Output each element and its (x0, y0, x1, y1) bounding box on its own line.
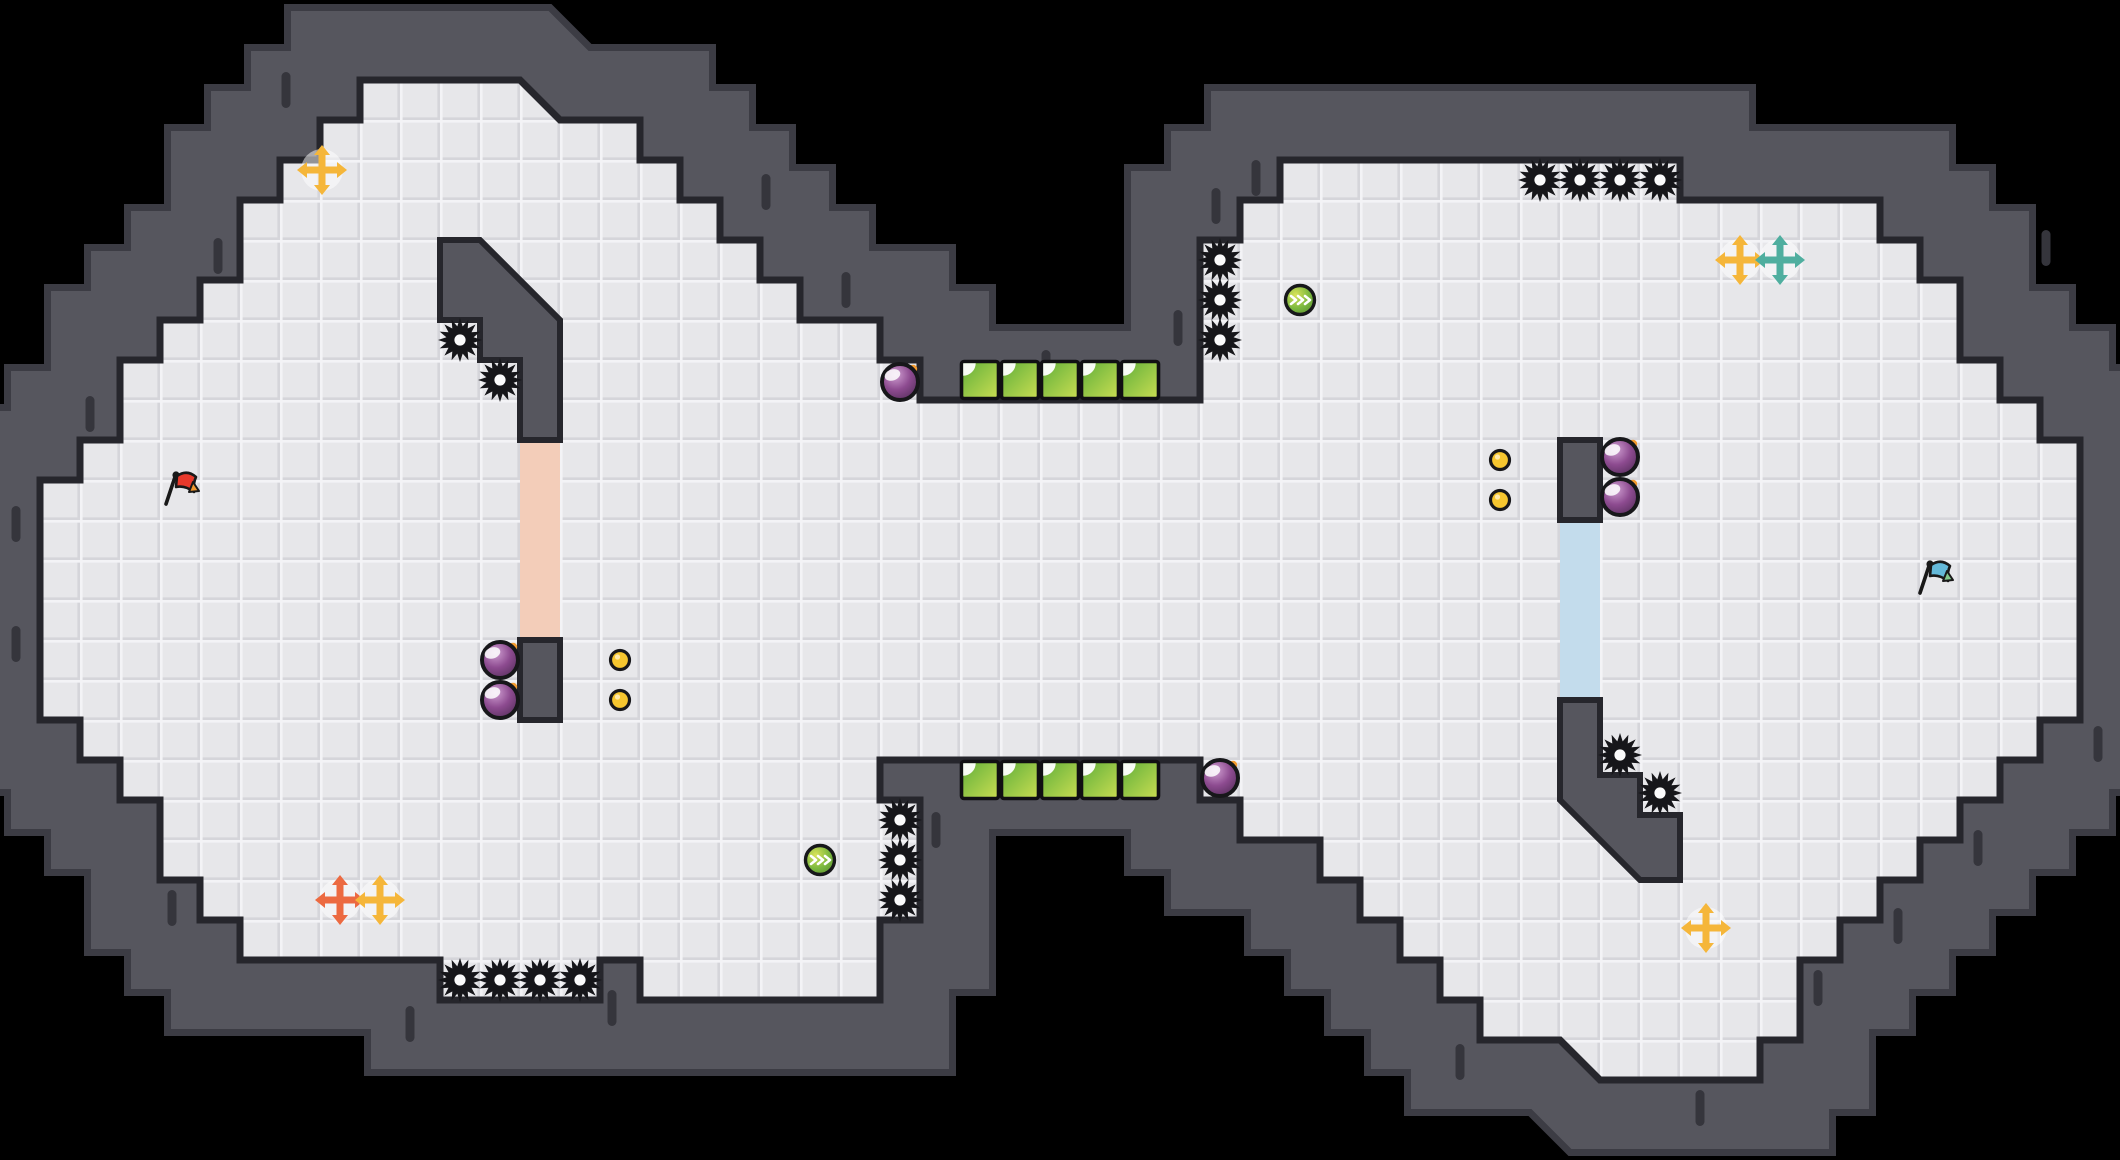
left-pillar-bottom (520, 640, 560, 720)
saw-blade (878, 798, 922, 842)
wall-tick (762, 174, 771, 210)
saw-hub (1614, 749, 1625, 760)
blue-door (1560, 520, 1600, 700)
saw-hub (534, 974, 545, 985)
wall-tick (1252, 160, 1261, 196)
wall-tick (168, 890, 177, 926)
saw-blade (558, 958, 602, 1002)
saw-blade (1198, 318, 1242, 362)
wall-tick (1696, 1090, 1705, 1126)
saw-blade (438, 318, 482, 362)
gold-coin (1491, 491, 1510, 510)
level-canvas (0, 0, 2120, 1160)
bounce-orb (806, 846, 835, 875)
wall-tick (86, 396, 95, 432)
saw-blade (1558, 158, 1602, 202)
mine-bomb (882, 364, 918, 400)
coin-shine (1495, 454, 1500, 459)
coin-shine (1495, 494, 1500, 499)
wall-tick (406, 1006, 415, 1042)
wall-tick (282, 72, 291, 108)
mine-bomb (1602, 439, 1638, 475)
jelly-block (1122, 362, 1159, 399)
bounce-orb (1286, 286, 1315, 315)
saw-blade (878, 838, 922, 882)
right-pillar-top (1560, 440, 1600, 520)
saw-hub (1614, 174, 1625, 185)
saw-blade (1598, 733, 1642, 777)
jelly-block (1002, 362, 1039, 399)
jelly-block (962, 762, 999, 799)
wall-tick (842, 272, 851, 308)
pink-door (520, 440, 560, 640)
coin-shine (615, 654, 620, 659)
saw-hub (494, 374, 505, 385)
mine-bomb (1202, 760, 1238, 796)
jelly-block (1082, 762, 1119, 799)
wall-tick (2094, 726, 2103, 762)
wall-tick (1456, 1044, 1465, 1080)
saw-blade (1638, 771, 1682, 815)
jelly-block (1002, 762, 1039, 799)
saw-blade (478, 358, 522, 402)
saw-hub (1214, 254, 1225, 265)
wall-tick (2042, 230, 2051, 266)
wall-tick (1974, 830, 1983, 866)
wall-tick (12, 626, 21, 662)
saw-hub (1574, 174, 1585, 185)
saw-blade (438, 958, 482, 1002)
saw-blade (878, 878, 922, 922)
saw-hub (894, 814, 905, 825)
saw-hub (454, 974, 465, 985)
wall-tick (608, 990, 617, 1026)
jelly-block (1122, 762, 1159, 799)
saw-blade (1638, 158, 1682, 202)
saw-hub (1534, 174, 1545, 185)
saw-hub (1654, 787, 1665, 798)
wall-tick (12, 506, 21, 542)
mine-bomb (1602, 479, 1638, 515)
wall-tick (214, 238, 223, 274)
saw-blade (518, 958, 562, 1002)
saw-blade (1198, 278, 1242, 322)
jelly-block (962, 362, 999, 399)
saw-hub (1654, 174, 1665, 185)
saw-hub (894, 854, 905, 865)
saw-hub (1214, 294, 1225, 305)
jelly-block (1042, 762, 1079, 799)
saw-hub (1214, 334, 1225, 345)
coin-shine (615, 694, 620, 699)
gold-coin (611, 691, 630, 710)
saw-blade (478, 958, 522, 1002)
wall-tick (1814, 970, 1823, 1006)
saw-blade (1518, 158, 1562, 202)
saw-hub (894, 894, 905, 905)
game-viewport[interactable] (0, 0, 2120, 1160)
wall-tick (1894, 908, 1903, 944)
wall-tick (1212, 188, 1221, 224)
saw-blade (1198, 238, 1242, 282)
saw-hub (454, 334, 465, 345)
mine-bomb (482, 642, 518, 678)
saw-blade (1598, 158, 1642, 202)
mine-bomb (482, 682, 518, 718)
wall-tick (1174, 310, 1183, 346)
saw-hub (574, 974, 585, 985)
saw-hub (494, 974, 505, 985)
wall-tick (932, 812, 941, 848)
gold-coin (1491, 451, 1510, 470)
gold-coin (611, 651, 630, 670)
jelly-block (1082, 362, 1119, 399)
jelly-block (1042, 362, 1079, 399)
